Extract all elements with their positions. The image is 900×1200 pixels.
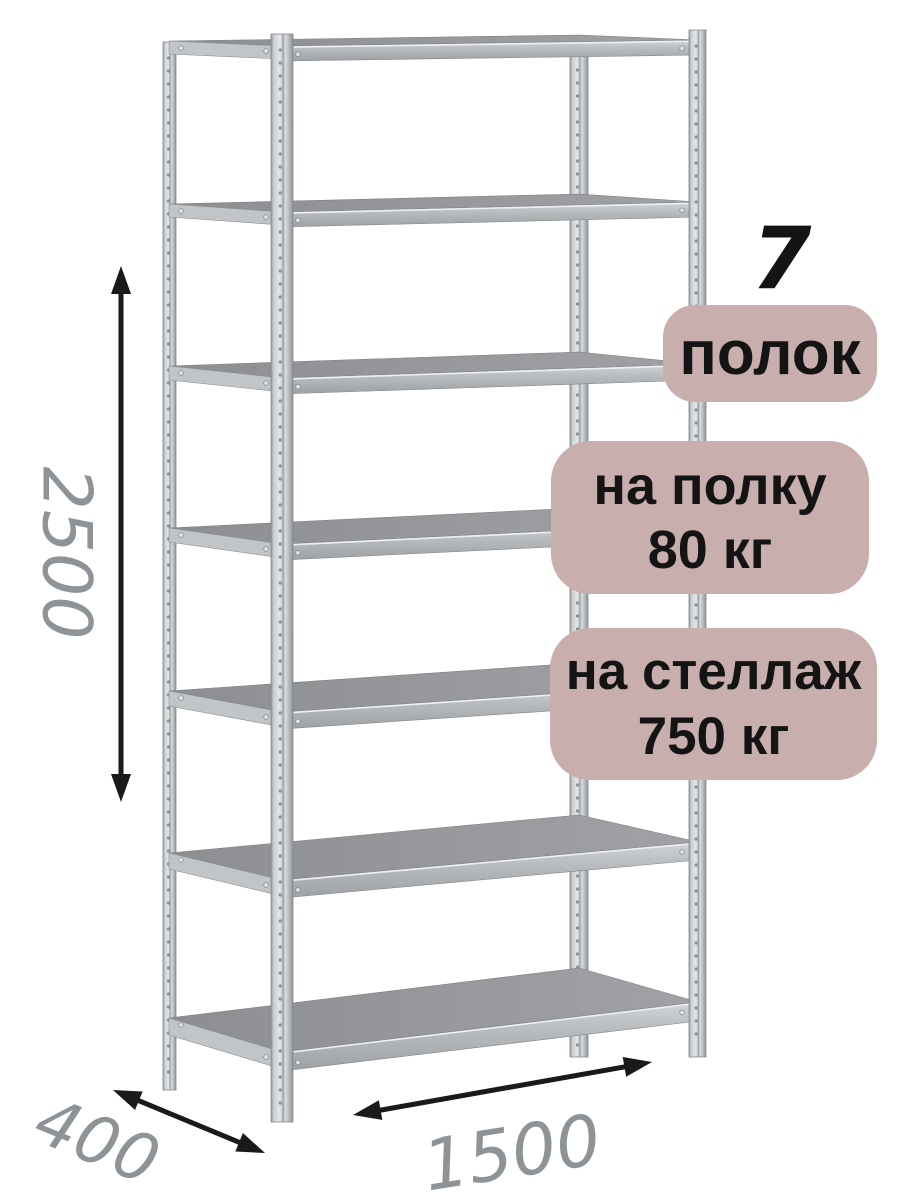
- shelf-count-badge: полок: [663, 305, 877, 402]
- depth-dimension-label: 400: [24, 1082, 170, 1200]
- rack-load-line1: на стеллаж: [550, 639, 877, 704]
- width-arrow: [353, 1057, 652, 1120]
- height-dimension: 2500: [27, 266, 132, 802]
- rack-shelf: [169, 194, 698, 227]
- rack-shelf: [169, 352, 698, 394]
- width-dimension: 1500: [353, 1057, 652, 1200]
- height-arrow: [111, 266, 131, 802]
- rack-load-badge: на стеллаж 750 кг: [550, 628, 877, 780]
- rack-post: [163, 42, 176, 1090]
- rack-shelf: [169, 968, 698, 1071]
- rack-illustration: 2500 400 1500: [0, 0, 900, 1200]
- shelf-load-line2: 80 кг: [551, 518, 869, 582]
- shelf-load-badge: на полку 80 кг: [551, 441, 869, 594]
- product-image: 2500 400 1500 7 полок на полку 80 кг на …: [0, 0, 900, 1200]
- depth-dimension: 400: [24, 1082, 265, 1200]
- height-dimension-label: 2500: [27, 466, 106, 639]
- rack-shelf: [169, 815, 698, 898]
- shelf-load-line1: на полку: [551, 454, 869, 518]
- shelf-count-number: 7: [724, 215, 839, 303]
- shelf-count-label: полок: [679, 319, 860, 388]
- rack-load-line2: 750 кг: [550, 704, 877, 769]
- rack-post: [271, 34, 293, 1122]
- rack-shelf: [169, 35, 698, 61]
- width-dimension-label: 1500: [418, 1099, 607, 1200]
